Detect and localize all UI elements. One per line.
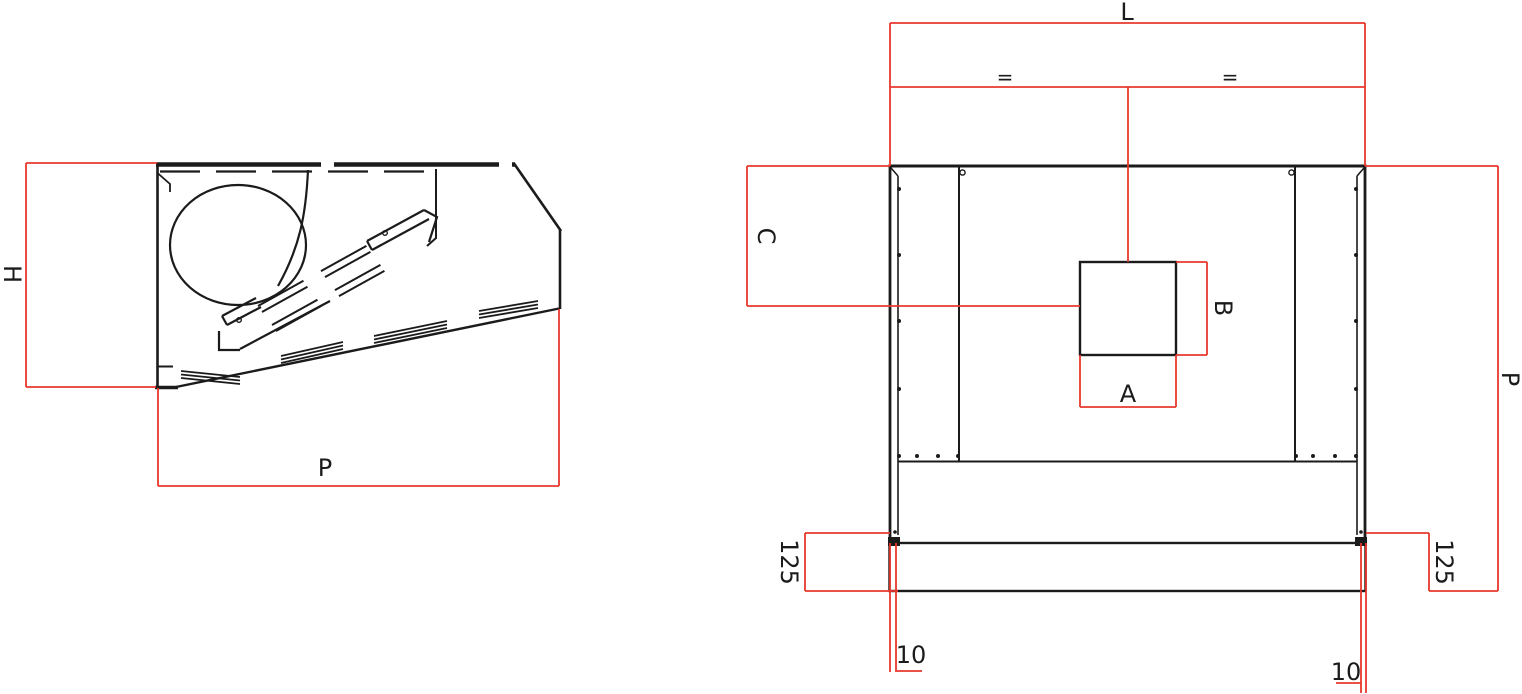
side-chamfer [514,164,561,232]
hood-dimension-drawing: H P [0,0,1522,694]
plan-front-band [890,543,1366,591]
dim-flange-125-left: 125 [775,533,898,591]
dim-label-125-right: 125 [1430,539,1458,585]
dim-label-125-left: 125 [775,539,803,585]
blower-volute-circle [170,185,306,305]
dim-offset-C: C [747,166,1080,306]
dim-label-10-right: 10 [1331,658,1362,686]
technical-drawing-canvas: H P [0,0,1522,694]
equal-mark-left: = [997,65,1014,89]
dim-edge-10-right: 10 [1331,543,1366,693]
filter-bank [240,245,386,349]
dim-duct-depth-B: B [1176,262,1237,355]
dim-label-C: C [752,228,780,245]
dim-label-10-left: 10 [896,641,927,669]
filter-rail-upper [367,210,437,250]
dim-height-H: H [0,163,157,387]
dim-label-A: A [1120,380,1137,408]
equal-mark-right: = [1222,65,1239,89]
dim-label-B: B [1209,300,1237,316]
dim-depth-P-plan: P [1365,166,1522,591]
side-view: H P [0,163,561,486]
side-bottom-slope [176,309,559,388]
dim-edge-10-left: 10 [890,543,926,672]
panel-screw-right [1289,170,1294,175]
duct-outlet [1080,262,1176,355]
plan-view: L = = C B A [747,0,1522,693]
dim-equal-split: = = [890,65,1365,262]
side-view-body [155,163,561,388]
dim-flange-125-right: 125 [1366,533,1458,591]
dim-label-P-plan: P [1496,372,1522,386]
dim-label-P-side: P [318,454,332,482]
dim-duct-width-A: A [1080,355,1176,408]
side-inner-chamfer [158,173,171,192]
panel-screw-left [960,170,965,175]
rail-screw-hole [237,318,242,323]
sill-rails [181,301,538,384]
dim-label-L: L [1120,0,1134,26]
rail-screw-hole [383,231,388,236]
dim-label-H: H [0,265,26,283]
